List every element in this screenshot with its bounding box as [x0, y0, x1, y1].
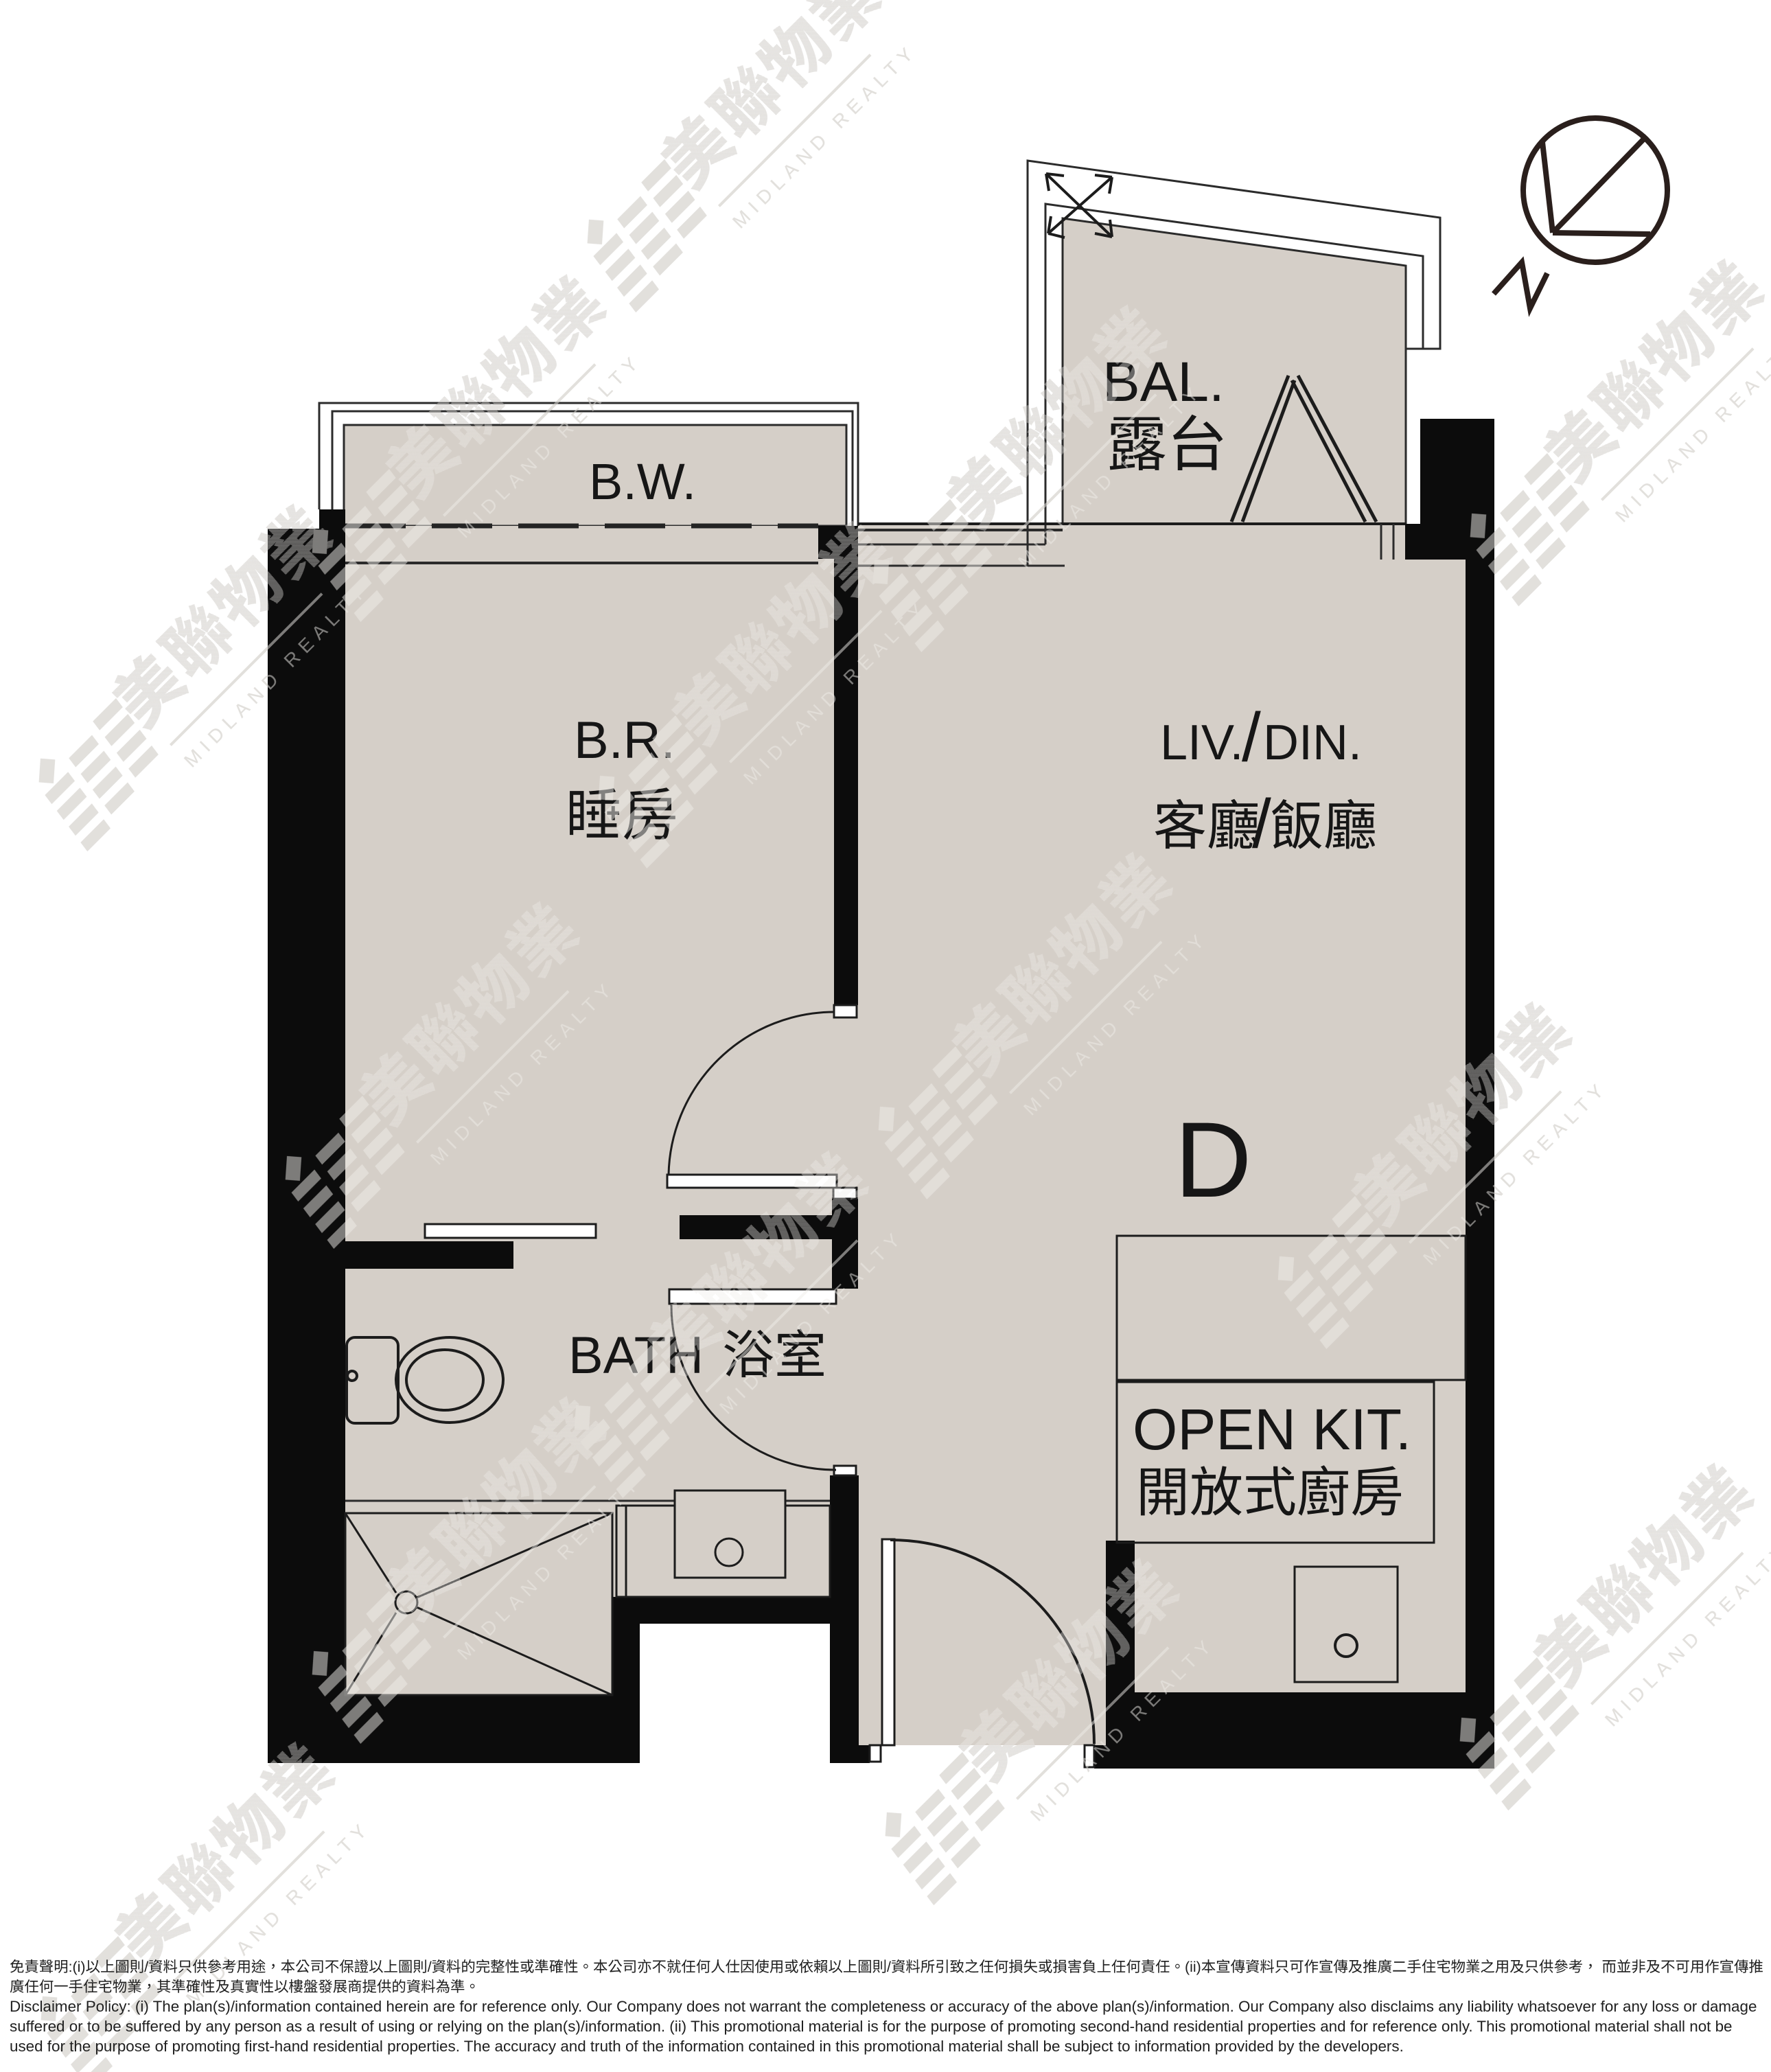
svg-text:/: /: [887, 1959, 891, 1975]
svg-text:DIN.: DIN.: [1263, 715, 1362, 770]
svg-text:B.W.: B.W.: [589, 453, 696, 510]
svg-text::(i): :(i): [69, 1959, 86, 1975]
svg-text:suffered or to be suffered by: suffered or to be suffered by any person…: [10, 2018, 1733, 2035]
svg-text:/: /: [144, 1959, 148, 1975]
svg-text:/: /: [1242, 699, 1261, 776]
svg-text:D: D: [1174, 1101, 1252, 1220]
svg-text:(ii): (ii): [1185, 1959, 1201, 1975]
svg-text:OPEN KIT.: OPEN KIT.: [1133, 1397, 1411, 1462]
svg-text:used for the purpose of promot: used for the purpose of promoting first-…: [10, 2038, 1404, 2055]
svg-text:Disclaimer Policy: (i) The pla: Disclaimer Policy: (i) The plan(s)/infor…: [10, 1998, 1757, 2015]
svg-text:/: /: [428, 1959, 432, 1975]
svg-text:/: /: [1252, 785, 1271, 862]
svg-text:LIV.: LIV.: [1160, 715, 1243, 770]
